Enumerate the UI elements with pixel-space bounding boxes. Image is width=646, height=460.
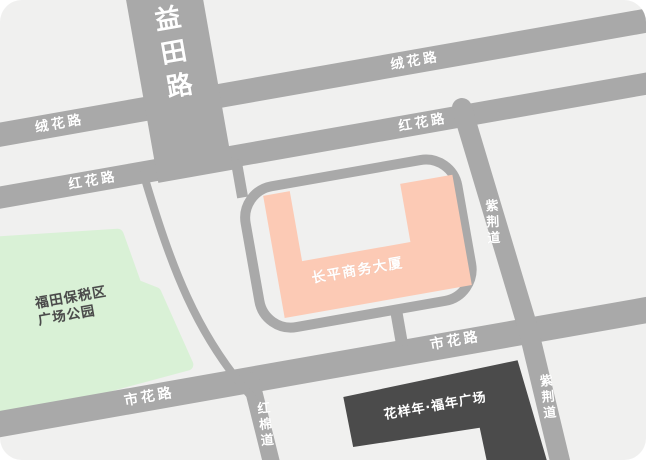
road-label-zijing-north: 紫荆道 [482, 198, 499, 247]
map-viewport[interactable]: 益田路 绒花路 绒花路 红花路 红花路 市花路 市花路 紫荆道 紫荆道 红棉道 … [0, 0, 646, 460]
map-rotated-layer: 益田路 绒花路 绒花路 红花路 红花路 市花路 市花路 紫荆道 紫荆道 红棉道 … [0, 0, 646, 460]
